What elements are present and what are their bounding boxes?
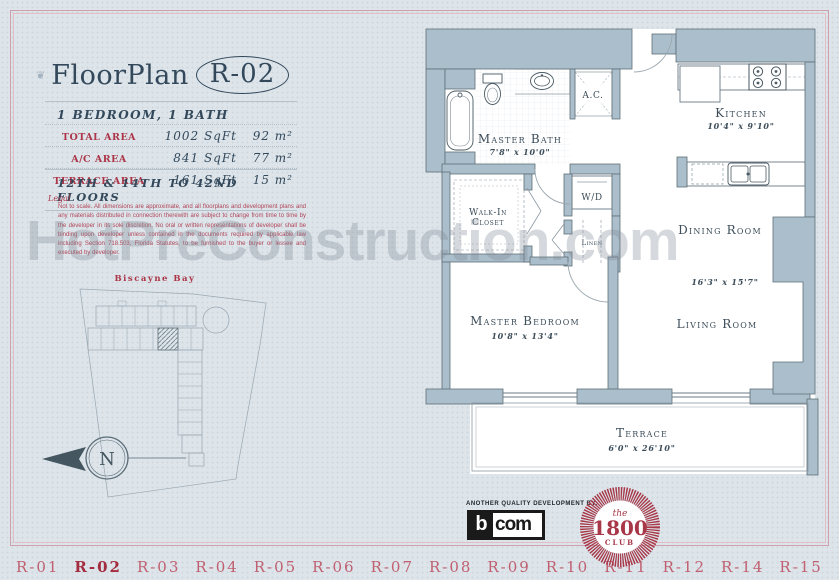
club-logo-year: 1800	[592, 516, 648, 540]
room-label-dining: Dining Room	[678, 223, 762, 237]
toilet-icon	[483, 74, 502, 83]
room-label-master-bedroom: Master Bedroom	[470, 314, 580, 328]
table-row: TOTAL AREA 1002 SqFt 92 m²	[45, 124, 297, 146]
nav-item-r08[interactable]: R-08	[429, 558, 472, 576]
room-label-wd: W/D	[581, 193, 602, 203]
nav-item-r01[interactable]: R-01	[16, 558, 59, 576]
room-dims-master-bedroom: 10'8" x 13'4"	[491, 331, 558, 341]
page-title-text: FloorPlan	[51, 60, 189, 91]
bcom-logo-b: b	[470, 513, 493, 537]
area-row-sqft: 841 SqFt	[153, 151, 237, 165]
unit-location-marker	[158, 328, 178, 350]
room-label-kitchen: Kitchen	[715, 106, 767, 120]
room-dims-terrace: 6'0" x 26'10"	[608, 443, 675, 453]
floorplan-nav: R-01 R-02 R-03 R-04 R-05 R-06 R-07 R-08 …	[0, 553, 839, 580]
nav-item-r03[interactable]: R-03	[137, 558, 180, 576]
area-row-label: A/C AREA	[45, 154, 153, 165]
table-row: A/C AREA 841 SqFt 77 m²	[45, 146, 297, 168]
nav-item-r05[interactable]: R-05	[254, 558, 297, 576]
page-title: ❦ FloorPlan R-02	[36, 56, 289, 94]
room-label-terrace: Terrace	[616, 426, 668, 440]
area-row-label: TOTAL AREA	[45, 132, 153, 143]
floorplan-page: { "watermark": "HotPreConstruction.com",…	[0, 0, 839, 580]
bcom-logo-com: com	[493, 513, 531, 537]
flourish-icon: ❦	[36, 69, 45, 82]
nav-item-r02[interactable]: R-02	[74, 558, 122, 576]
nav-item-r12[interactable]: R-12	[663, 558, 706, 576]
room-dims-kitchen: 10'4" x 9'10"	[707, 121, 774, 131]
room-label-ac: A.C.	[581, 91, 603, 101]
floor-plan: Master Bath 7'8" x 10'0" Kitchen 10'4" x…	[420, 24, 820, 476]
area-row-metric: 77 m²	[237, 151, 297, 165]
compass: N	[36, 430, 191, 490]
bcom-logo: b com	[467, 510, 545, 540]
room-dims-master-bath: 7'8" x 10'0"	[489, 147, 550, 157]
legal-disclaimer: Not to scale. All dimensions are approxi…	[58, 203, 306, 259]
room-label-walkin-2: Closet	[472, 218, 504, 228]
room-label-linen: Linen	[581, 239, 602, 247]
nav-item-r09[interactable]: R-09	[487, 558, 530, 576]
area-row-sqft: 1002 SqFt	[153, 129, 237, 143]
1800-club-logo: the 1800 CLUB	[575, 482, 665, 572]
nav-item-r15[interactable]: R-15	[779, 558, 822, 576]
refrigerator-icon	[680, 66, 720, 102]
room-label-walkin-1: Walk-In	[469, 208, 507, 218]
biscayne-bay-label: Biscayne Bay	[115, 274, 196, 284]
room-label-living: Living Room	[677, 317, 758, 331]
nav-item-r14[interactable]: R-14	[721, 558, 764, 576]
legal-label: Legal	[48, 194, 71, 203]
area-row-metric: 92 m²	[237, 129, 297, 143]
bed-bath-subtitle: 1 BEDROOM, 1 BATH	[57, 108, 229, 122]
nav-item-r07[interactable]: R-07	[371, 558, 414, 576]
club-logo-name: CLUB	[605, 538, 635, 547]
room-label-master-bath: Master Bath	[478, 132, 562, 146]
nav-item-r04[interactable]: R-04	[195, 558, 238, 576]
divider	[45, 101, 297, 102]
compass-arrow-icon	[42, 447, 86, 471]
nav-item-r06[interactable]: R-06	[312, 558, 355, 576]
room-dims-dining: 16'3" x 15'7"	[691, 277, 758, 287]
plan-id-badge: R-02	[196, 56, 289, 94]
compass-north-label: N	[99, 449, 115, 470]
